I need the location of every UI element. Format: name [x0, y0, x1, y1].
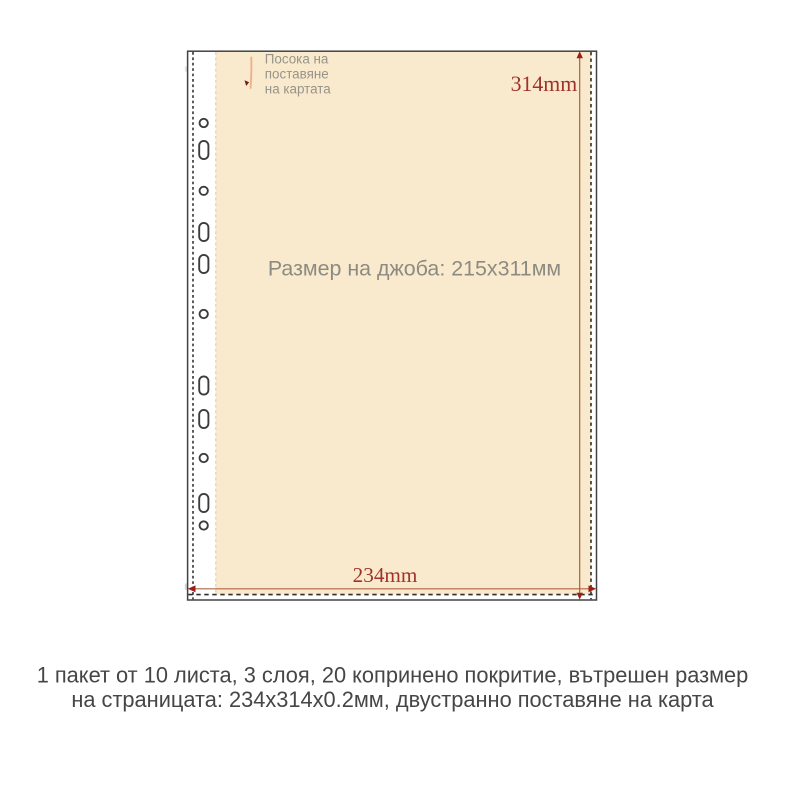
svg-text:234mm: 234mm — [353, 563, 418, 587]
svg-text:1 пакет от 10 листа, 3 слоя, 2: 1 пакет от 10 листа, 3 слоя, 20 копринен… — [37, 663, 749, 688]
svg-text:314mm: 314mm — [511, 72, 578, 96]
svg-text:Размер на джоба: 215x311мм: Размер на джоба: 215x311мм — [268, 256, 561, 280]
svg-text:Посока на: Посока на — [265, 51, 329, 66]
svg-text:на страницата: 234x314x0.2мм,: на страницата: 234x314x0.2мм, двустранно… — [71, 687, 714, 712]
svg-text:поставяне: поставяне — [265, 66, 329, 81]
svg-text:на картата: на картата — [265, 81, 331, 96]
